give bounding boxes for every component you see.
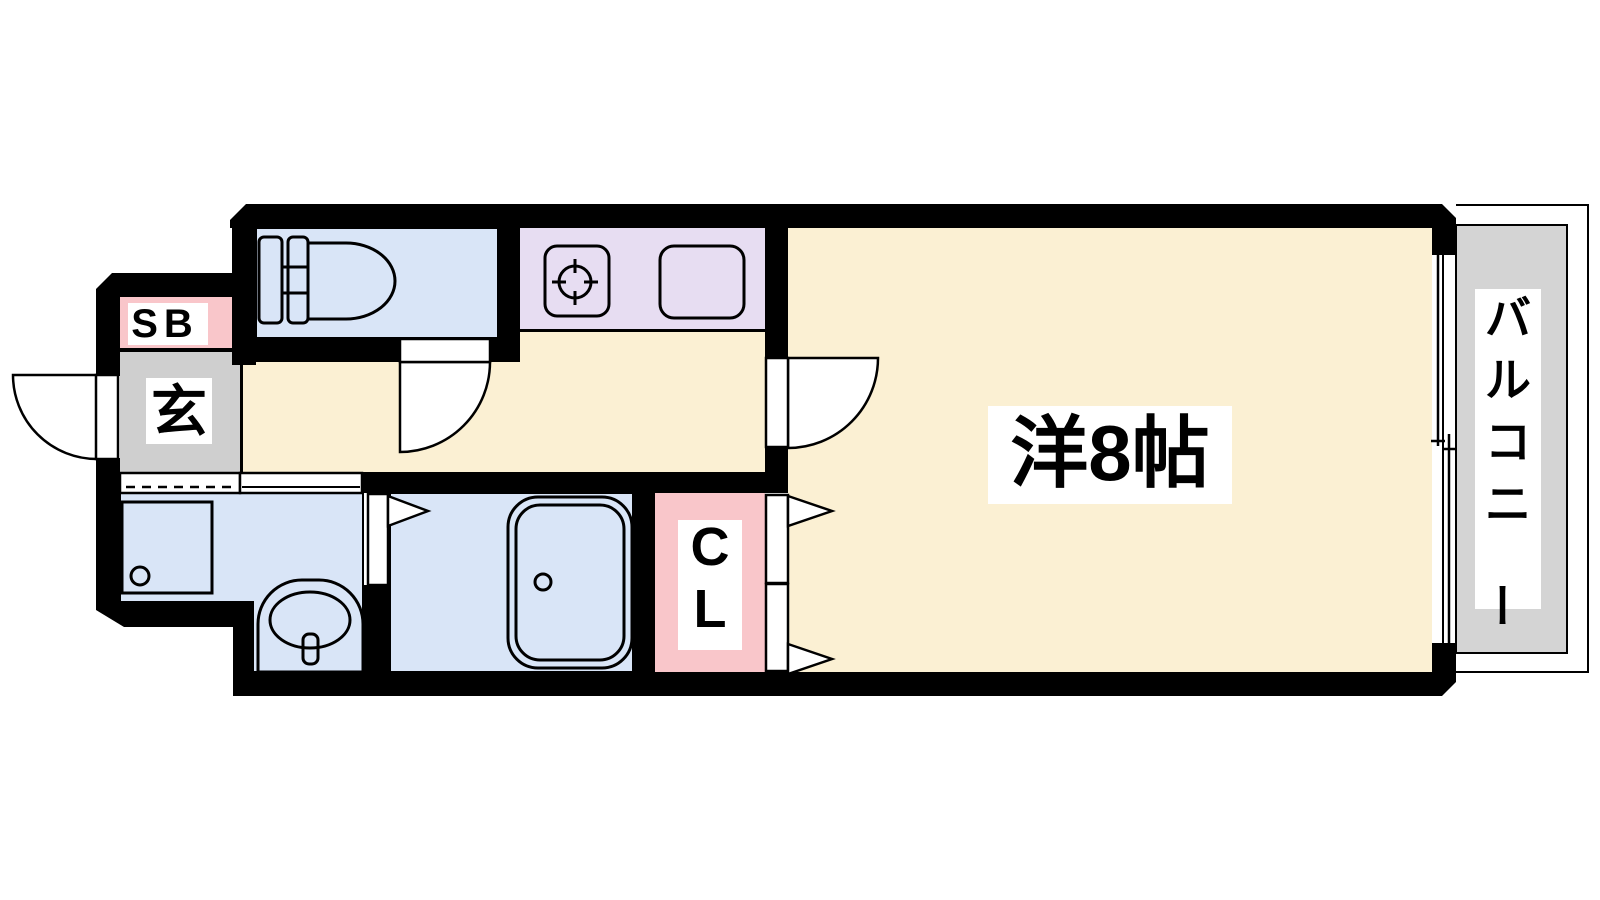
wall-hall-south <box>362 472 768 493</box>
wall-left-lower <box>96 458 120 627</box>
entrance-step-panel <box>120 473 240 493</box>
wall-toilet-kitchen <box>498 204 520 360</box>
washroom-sliding-door-icon <box>120 473 362 493</box>
floor-plan-page: SB 玄 CL 洋8帖 バルコニー <box>0 0 1600 900</box>
wall-toilet-bottom-right <box>488 338 520 362</box>
entrance-door-swing-icon <box>13 375 118 459</box>
shoe-box-label: SB <box>131 302 199 346</box>
main-room-label: 洋8帖 <box>1010 409 1209 497</box>
wall-main-left-lower <box>765 447 788 493</box>
wall-toilet-bottom-left <box>232 338 402 362</box>
wall-bottom-left <box>96 602 253 627</box>
sliding-door-panel <box>240 473 362 493</box>
entrance-label: 玄 <box>151 380 207 443</box>
wall-wash-bath <box>363 585 390 672</box>
wall-bottom <box>233 672 1456 696</box>
wall-bath-closet <box>633 493 655 672</box>
wall-top <box>230 204 1456 228</box>
wall-left-upper <box>96 273 120 376</box>
wall-main-left-upper <box>765 204 788 358</box>
floor-plan: SB 玄 CL 洋8帖 バルコニー <box>0 0 1600 900</box>
divider-sb-entrance <box>120 348 232 352</box>
divider-entrance-hall <box>240 351 243 472</box>
kitchen-counter-edge <box>520 329 765 332</box>
room-bathroom <box>390 493 633 672</box>
